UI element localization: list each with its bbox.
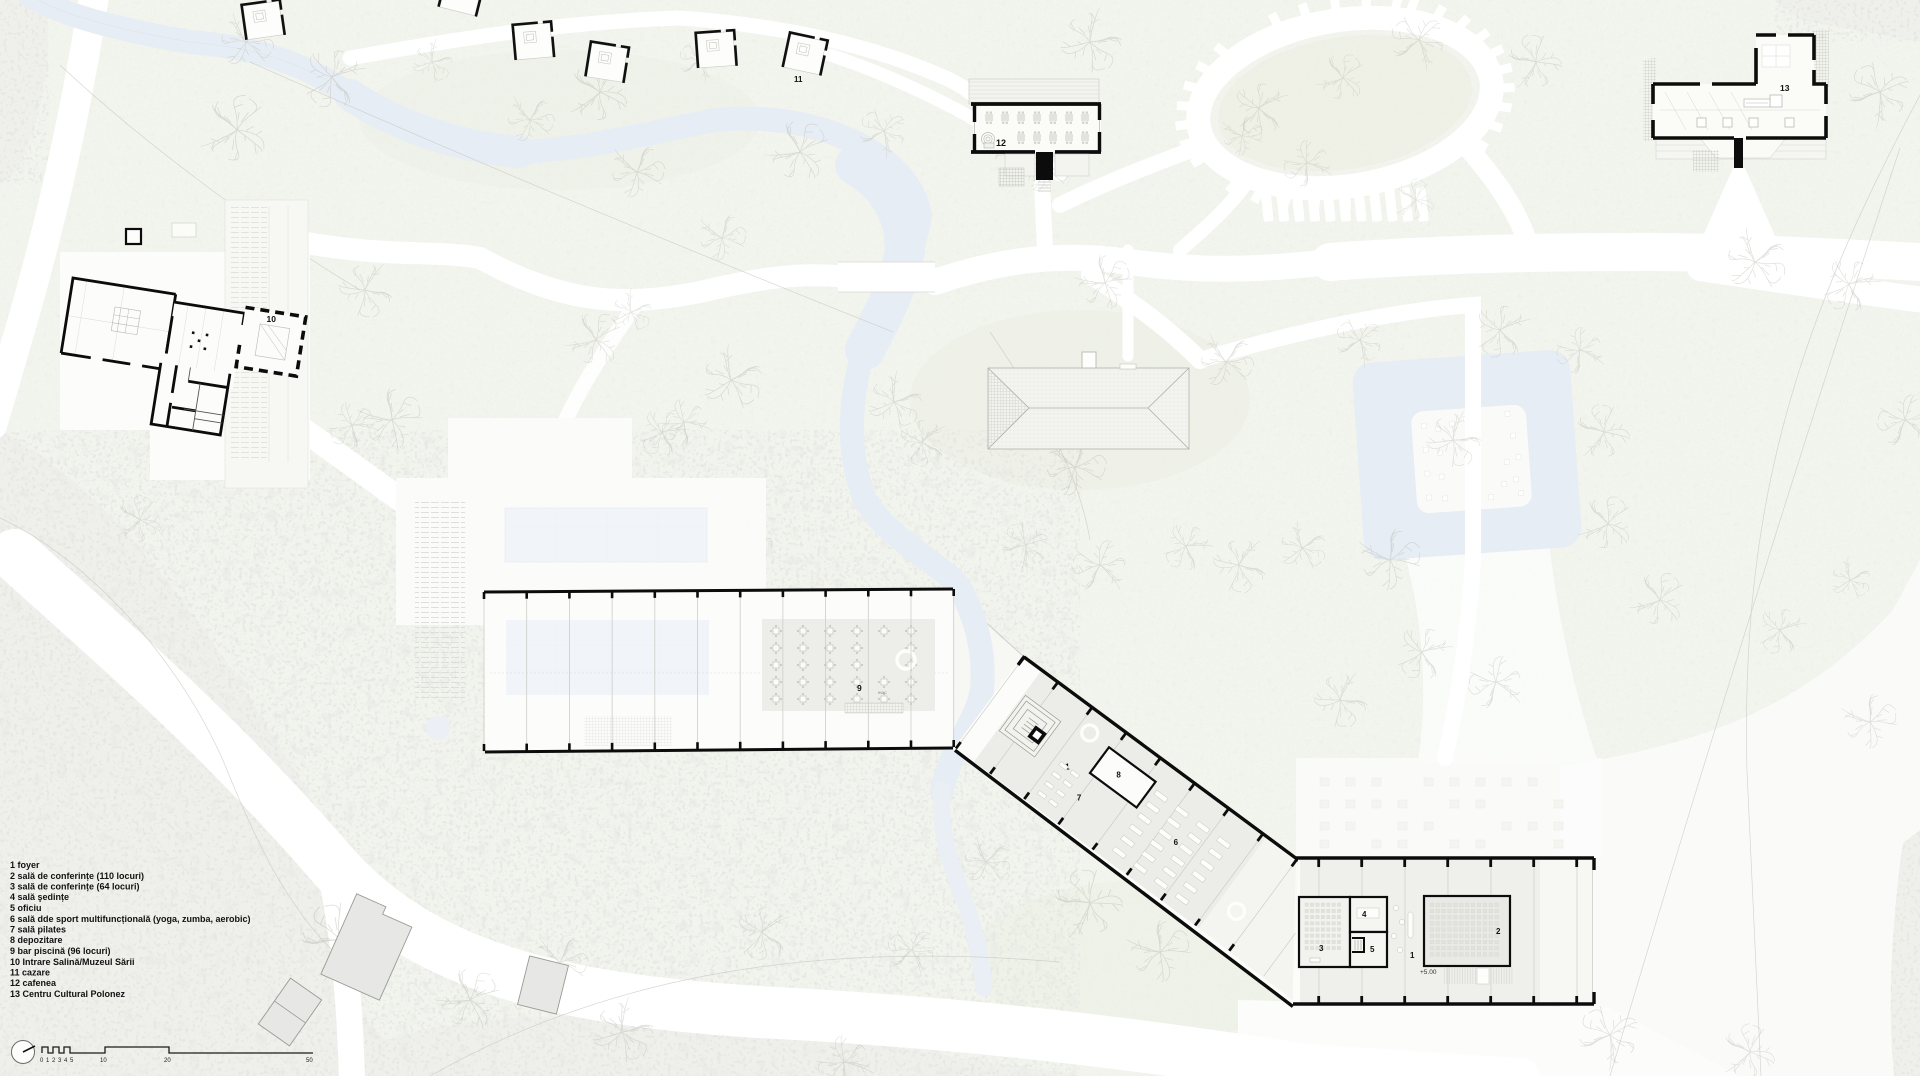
svg-text:8: 8 [1116, 771, 1121, 780]
svg-text:3 sală de conferințe (64 locur: 3 sală de conferințe (64 locuri) [10, 882, 140, 892]
svg-text:8 depozitare: 8 depozitare [10, 935, 63, 945]
svg-text:11: 11 [794, 75, 803, 84]
svg-text:6: 6 [1174, 838, 1179, 847]
svg-text:10: 10 [100, 1058, 107, 1064]
svg-text:6 sală dde sport multifuncțion: 6 sală dde sport multifuncțională (yoga,… [10, 914, 251, 924]
svg-text:10 Intrare Salină/Muzeul Sării: 10 Intrare Salină/Muzeul Sării [10, 957, 135, 967]
svg-text:9 bar piscină (96 locuri): 9 bar piscină (96 locuri) [10, 946, 111, 956]
svg-text:3: 3 [1319, 944, 1324, 953]
svg-text:50: 50 [306, 1058, 313, 1064]
svg-text:5: 5 [1370, 945, 1375, 954]
svg-text:12 cafenea: 12 cafenea [10, 978, 57, 988]
svg-text:4 sală şedințe: 4 sală şedințe [10, 892, 69, 902]
svg-text:2 sală de conferințe (110 locu: 2 sală de conferințe (110 locuri) [10, 871, 144, 881]
svg-text:1: 1 [1410, 951, 1415, 960]
svg-text:7: 7 [1077, 794, 1082, 803]
svg-text:10: 10 [267, 314, 277, 324]
svg-text:1 foyer: 1 foyer [10, 860, 40, 870]
svg-text:9: 9 [857, 683, 862, 693]
svg-text:+5.00: +5.00 [1420, 969, 1437, 976]
svg-text:2: 2 [1496, 927, 1501, 936]
svg-text:13 Centru Cultural Polonez: 13 Centru Cultural Polonez [10, 989, 126, 999]
svg-text:7 sală pilates: 7 sală pilates [10, 925, 66, 935]
svg-text:11 cazare: 11 cazare [10, 968, 50, 978]
svg-text:13: 13 [1780, 83, 1790, 93]
svg-text:4: 4 [1362, 910, 1367, 919]
svg-text:HVAC: HVAC [878, 691, 887, 695]
svg-text:12: 12 [996, 138, 1006, 148]
svg-text:5 oficiu: 5 oficiu [10, 903, 42, 913]
svg-text:20: 20 [164, 1058, 171, 1064]
